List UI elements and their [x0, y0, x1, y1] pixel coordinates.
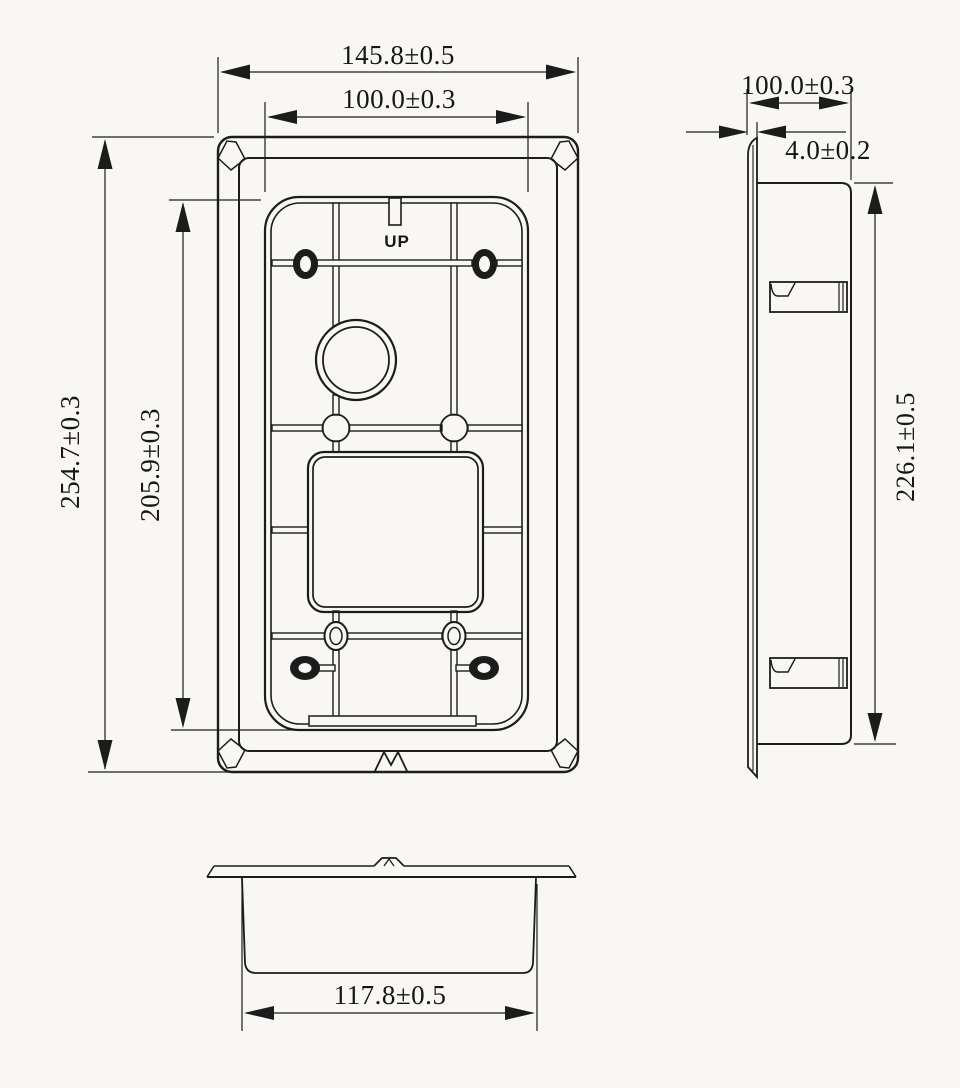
- top-screw-hole-left: [293, 249, 318, 279]
- dim-side-flange-thickness: 4.0±0.2: [686, 122, 871, 165]
- bottom-view: [207, 858, 576, 973]
- dim-label-side-body-height: 226.1±0.5: [891, 392, 920, 502]
- corner-facet-bottom-left: [218, 739, 245, 768]
- bottom-notch: [375, 752, 407, 771]
- dim-label-front-outer-width: 145.8±0.5: [341, 40, 455, 70]
- corner-facet-top-left: [218, 141, 245, 170]
- front-view: UP: [218, 137, 578, 772]
- technical-drawing: UP 145.8±0.5 100.0±0.3 254.7±0.3 205.9±0…: [0, 0, 960, 1088]
- dim-label-front-outer-height: 254.7±0.3: [55, 395, 85, 509]
- top-screw-hole-right: [472, 249, 497, 279]
- corner-facet-bottom-right: [551, 739, 578, 768]
- dim-label-side-flange-thickness: 4.0±0.2: [785, 135, 871, 165]
- bottom-slot-right: [469, 656, 499, 680]
- panel-bottom-ledge: [309, 716, 476, 726]
- up-marking: UP: [384, 232, 410, 251]
- bottom-body: [242, 878, 536, 973]
- square-cutout: [308, 452, 483, 612]
- dim-label-side-overall-depth: 100.0±0.3: [741, 70, 855, 100]
- dim-bottom-body-width: 117.8±0.5: [242, 884, 537, 1031]
- middle-hole-left: [323, 415, 350, 442]
- dim-front-hole-pitch-height: 205.9±0.3: [135, 200, 306, 730]
- side-clip-bottom: [770, 658, 847, 688]
- drawing-page: UP 145.8±0.5 100.0±0.3 254.7±0.3 205.9±0…: [0, 0, 960, 1088]
- dim-label-front-hole-pitch-height: 205.9±0.3: [135, 408, 165, 522]
- lower-oval-hole-right: [443, 622, 466, 650]
- cable-hole: [316, 320, 396, 400]
- bottom-slot-left: [290, 656, 320, 680]
- middle-hole-right: [441, 415, 468, 442]
- top-alignment-notch: [389, 198, 401, 225]
- dim-label-bottom-body-width: 117.8±0.5: [334, 980, 447, 1010]
- lower-oval-hole-left: [325, 622, 348, 650]
- bottom-flange: [207, 858, 576, 877]
- side-clip-top: [770, 282, 847, 312]
- side-view: [748, 138, 851, 777]
- dim-label-front-hole-pitch-width: 100.0±0.3: [342, 84, 456, 114]
- dim-side-body-height: 226.1±0.5: [854, 183, 920, 744]
- corner-facet-top-right: [551, 141, 578, 170]
